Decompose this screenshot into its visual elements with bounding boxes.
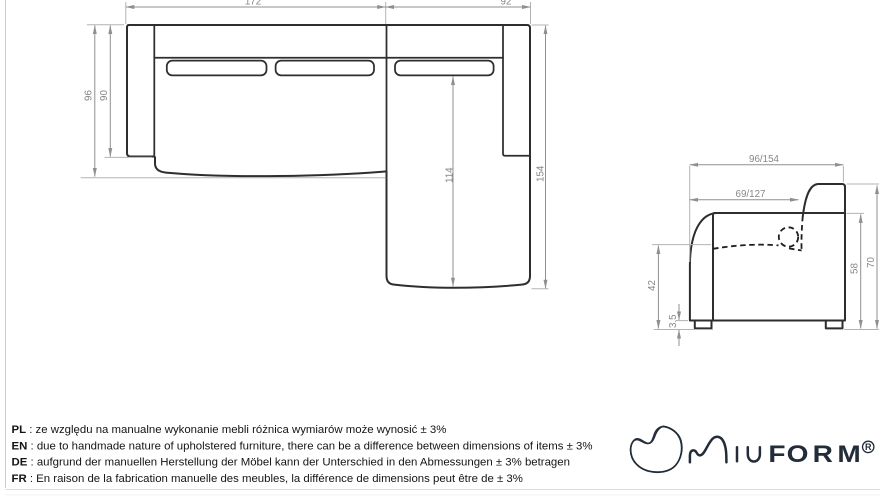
svg-text:92: 92 [501, 0, 512, 8]
svg-text:58: 58 [850, 263, 861, 274]
svg-text:R: R [865, 442, 872, 452]
svg-text:154: 154 [536, 165, 547, 182]
svg-text:42: 42 [647, 280, 658, 291]
svg-text:DE : aufgrund der manuellen He: DE : aufgrund der manuellen Herstellung … [12, 457, 570, 469]
svg-text:172: 172 [245, 0, 261, 8]
svg-text:EN : due to handmade nature of: EN : due to handmade nature of upholster… [12, 440, 593, 452]
svg-text:PL : ze względu na manualne wy: PL : ze względu na manualne wykonanie me… [12, 424, 447, 436]
svg-text:96/154: 96/154 [749, 154, 780, 165]
svg-text:70: 70 [866, 257, 877, 268]
svg-text:90: 90 [99, 90, 110, 101]
svg-text:FR : En raison de la fabricati: FR : En raison de la fabrication manuell… [12, 473, 523, 485]
svg-text:69/127: 69/127 [736, 189, 766, 200]
svg-text:FORM: FORM [768, 440, 860, 468]
svg-text:114: 114 [445, 167, 456, 183]
svg-text:3.5: 3.5 [668, 314, 679, 328]
svg-text:96: 96 [83, 90, 94, 101]
